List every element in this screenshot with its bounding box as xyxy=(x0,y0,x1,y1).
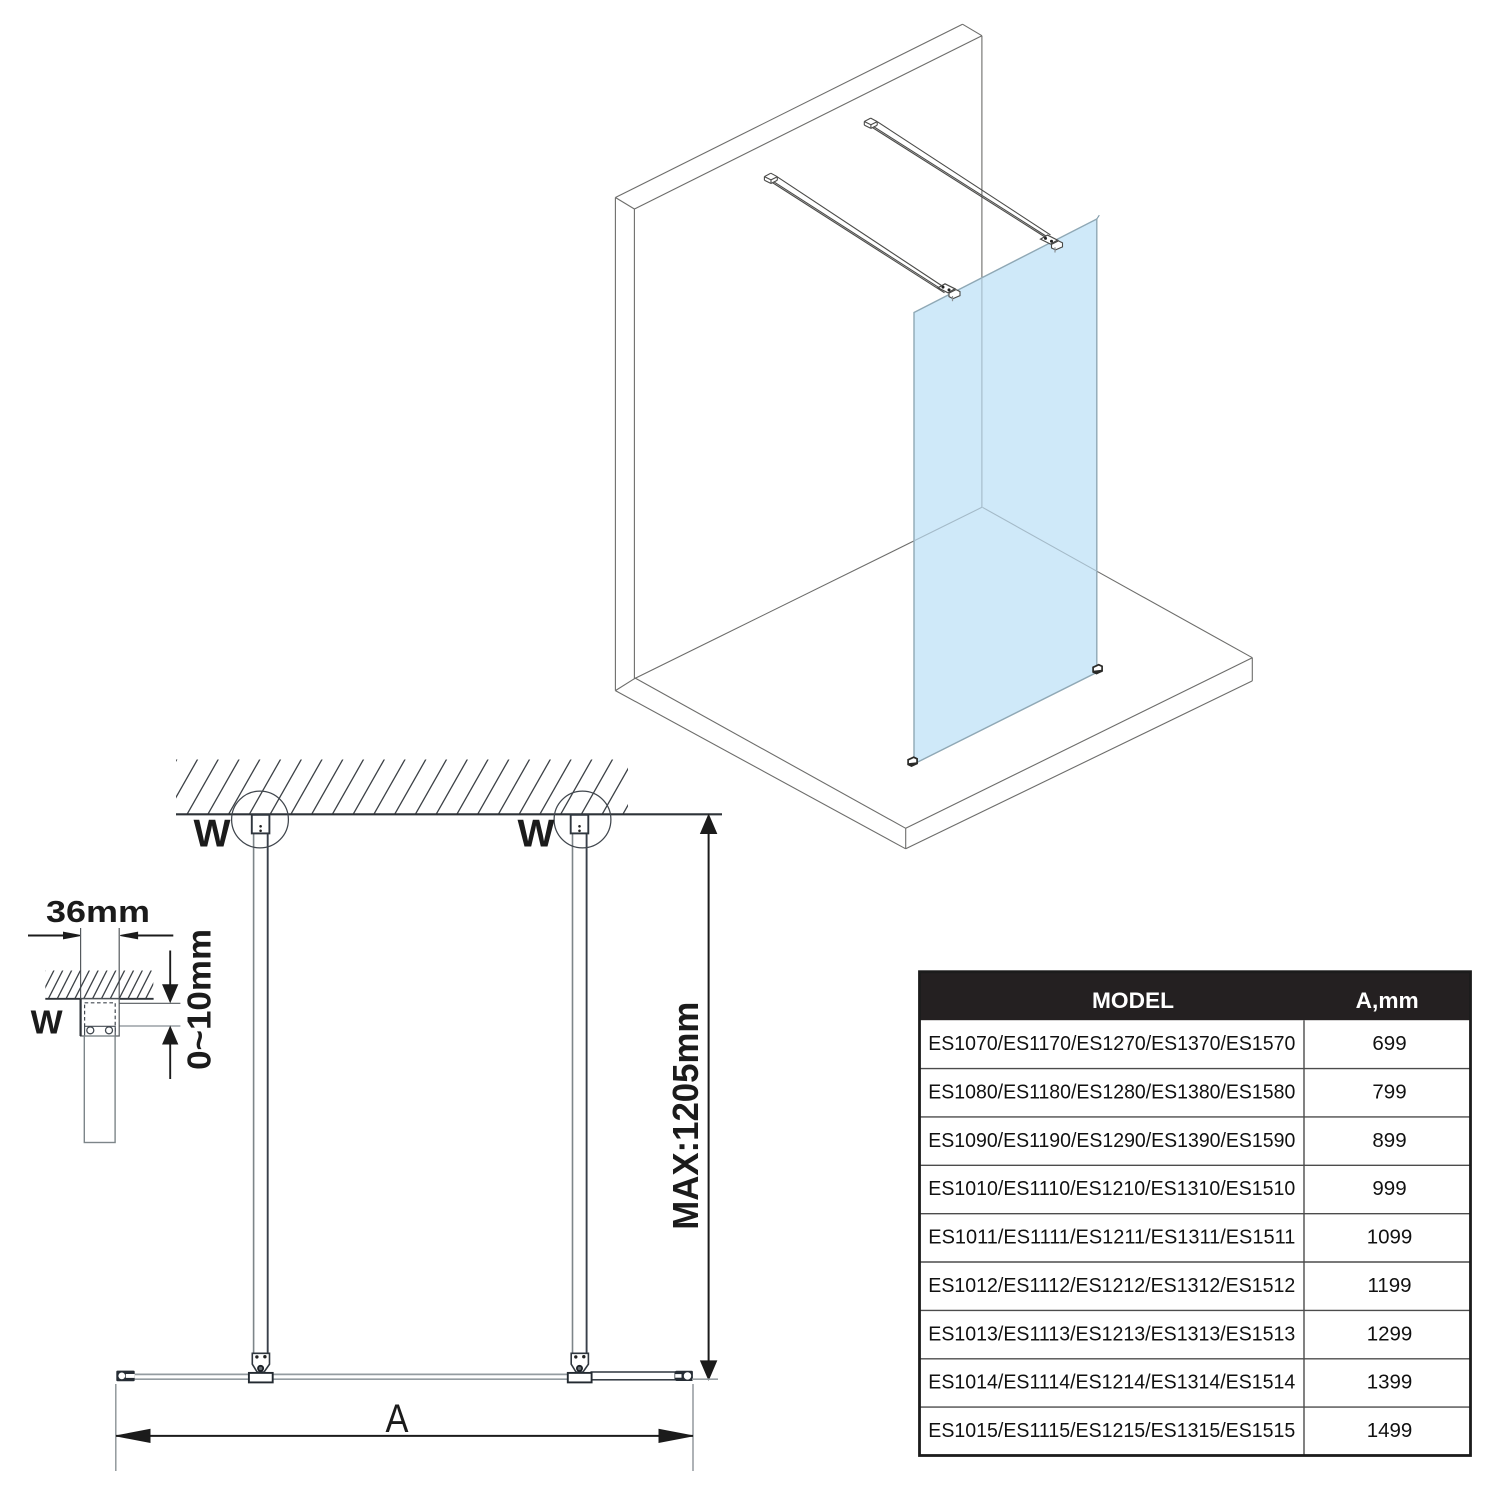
svg-text:ES1011/ES1111/ES1211/ES1311/ES: ES1011/ES1111/ES1211/ES1311/ES1511 xyxy=(928,1226,1295,1249)
svg-text:ES1013/ES1113/ES1213/ES1313/ES: ES1013/ES1113/ES1213/ES1313/ES1513 xyxy=(928,1322,1295,1345)
svg-text:MAX:1205mm: MAX:1205mm xyxy=(665,1002,706,1230)
svg-text:W: W xyxy=(518,813,556,856)
svg-text:ES1014/ES1114/ES1214/ES1314/ES: ES1014/ES1114/ES1214/ES1314/ES1514 xyxy=(928,1371,1295,1394)
svg-text:699: 699 xyxy=(1372,1032,1406,1055)
svg-text:A,mm: A,mm xyxy=(1356,988,1419,1013)
svg-text:A: A xyxy=(386,1397,409,1441)
svg-text:1099: 1099 xyxy=(1367,1226,1413,1249)
svg-text:1299: 1299 xyxy=(1367,1322,1413,1345)
svg-text:799: 799 xyxy=(1372,1081,1406,1104)
svg-text:1499: 1499 xyxy=(1367,1419,1413,1442)
svg-text:ES1012/ES1112/ES1212/ES1312/ES: ES1012/ES1112/ES1212/ES1312/ES1512 xyxy=(928,1274,1295,1297)
svg-text:ES1010/ES1110/ES1210/ES1310/ES: ES1010/ES1110/ES1210/ES1310/ES1510 xyxy=(928,1177,1295,1200)
svg-text:MODEL: MODEL xyxy=(1092,988,1174,1013)
svg-text:899: 899 xyxy=(1372,1129,1406,1152)
svg-text:ES1070/ES1170/ES1270/ES1370/ES: ES1070/ES1170/ES1270/ES1370/ES1570 xyxy=(928,1032,1295,1055)
svg-text:999: 999 xyxy=(1372,1177,1406,1200)
svg-text:1399: 1399 xyxy=(1367,1371,1413,1394)
svg-text:36mm: 36mm xyxy=(46,894,150,929)
svg-text:ES1080/ES1180/ES1280/ES1380/ES: ES1080/ES1180/ES1280/ES1380/ES1580 xyxy=(928,1081,1295,1104)
svg-text:0~10mm: 0~10mm xyxy=(180,929,217,1070)
svg-text:ES1090/ES1190/ES1290/ES1390/ES: ES1090/ES1190/ES1290/ES1390/ES1590 xyxy=(928,1129,1295,1152)
svg-text:1199: 1199 xyxy=(1367,1274,1411,1297)
svg-text:ES1015/ES1115/ES1215/ES1315/ES: ES1015/ES1115/ES1215/ES1315/ES1515 xyxy=(928,1419,1295,1442)
svg-text:W: W xyxy=(31,1003,64,1040)
svg-text:W: W xyxy=(194,813,232,856)
